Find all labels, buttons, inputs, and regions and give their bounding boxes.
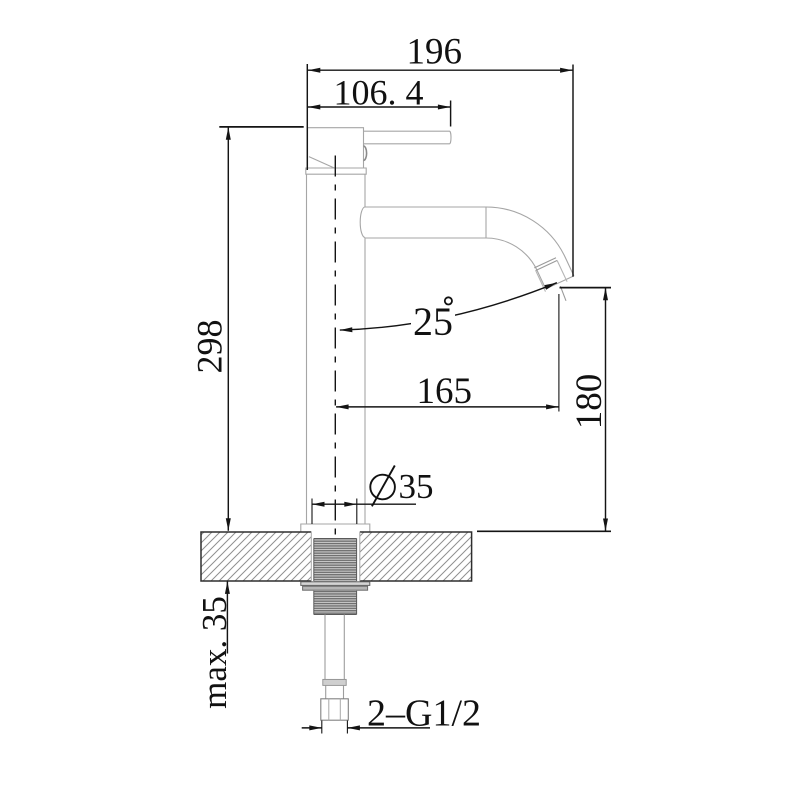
svg-text:165: 165 (417, 371, 473, 412)
svg-text:180: 180 (569, 374, 610, 430)
svg-text:25: 25 (413, 299, 453, 344)
svg-text:196: 196 (407, 32, 463, 73)
svg-text:max. 35: max. 35 (195, 596, 234, 709)
svg-text:2–G1/2: 2–G1/2 (367, 693, 481, 735)
svg-text:106. 4: 106. 4 (334, 73, 424, 113)
svg-text:298: 298 (190, 320, 230, 374)
svg-text:35: 35 (399, 467, 434, 506)
